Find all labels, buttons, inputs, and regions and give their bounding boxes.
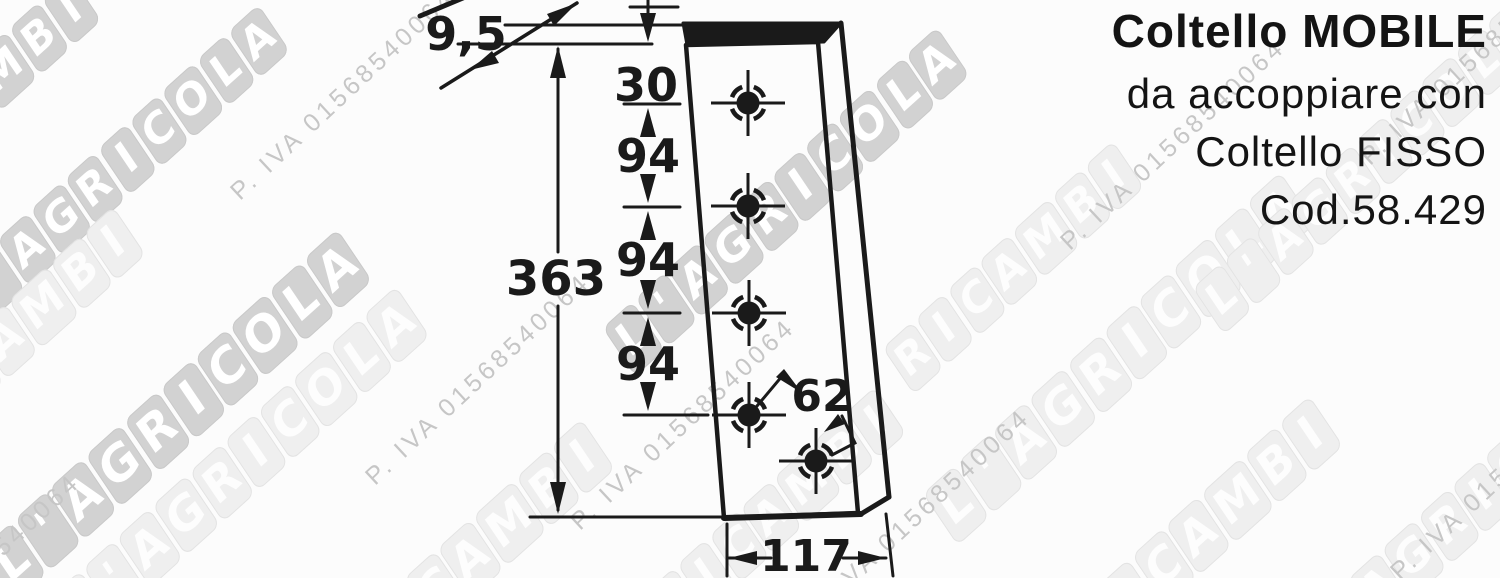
blade-outline bbox=[683, 23, 889, 518]
dim-label-total-length: 363 bbox=[506, 251, 606, 307]
part-subtitle-line1: da accoppiare con bbox=[1112, 70, 1487, 118]
dimension-width: 117 bbox=[727, 514, 893, 578]
part-subtitle-line2: Coltello FISSO bbox=[1112, 128, 1487, 176]
dim-label-width: 117 bbox=[760, 531, 852, 578]
blade-holes bbox=[711, 70, 853, 494]
dim-label-spacing: 94 bbox=[616, 233, 680, 287]
hole-mark bbox=[711, 70, 785, 136]
info-panel: Coltello MOBILE da accoppiare con Coltel… bbox=[1112, 4, 1487, 244]
hole-mark bbox=[712, 382, 786, 448]
hole-mark bbox=[711, 173, 785, 239]
part-code: Cod.58.429 bbox=[1112, 186, 1487, 234]
dim-label-offset-hole: 62 bbox=[791, 371, 852, 422]
hole-mark bbox=[779, 428, 853, 494]
part-title: Coltello MOBILE bbox=[1112, 4, 1487, 58]
hole-mark bbox=[712, 280, 786, 346]
dimension-chain: 30 94 94 94 bbox=[614, 0, 708, 415]
dimension-offset-hole: 62 bbox=[757, 369, 855, 455]
catalog-page: L'AGRICOLA RICAMBI L'AGRICOLA RICAMBI L'… bbox=[0, 0, 1500, 578]
dim-label-thickness: 9,5 bbox=[425, 7, 507, 61]
